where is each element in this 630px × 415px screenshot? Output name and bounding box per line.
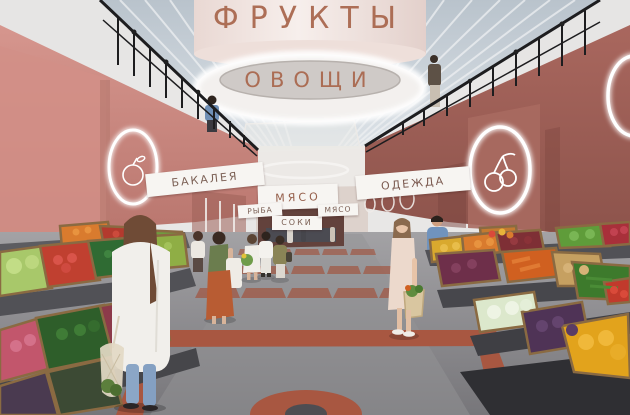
market-hall-scene <box>0 0 630 415</box>
market-hall-render: ФРУКТЫ ОВОЩИ БАКАЛЕЯ ОДЕЖДА МЯСО РЫБА СО… <box>0 0 630 415</box>
vegetables-ring-sign <box>196 54 424 122</box>
